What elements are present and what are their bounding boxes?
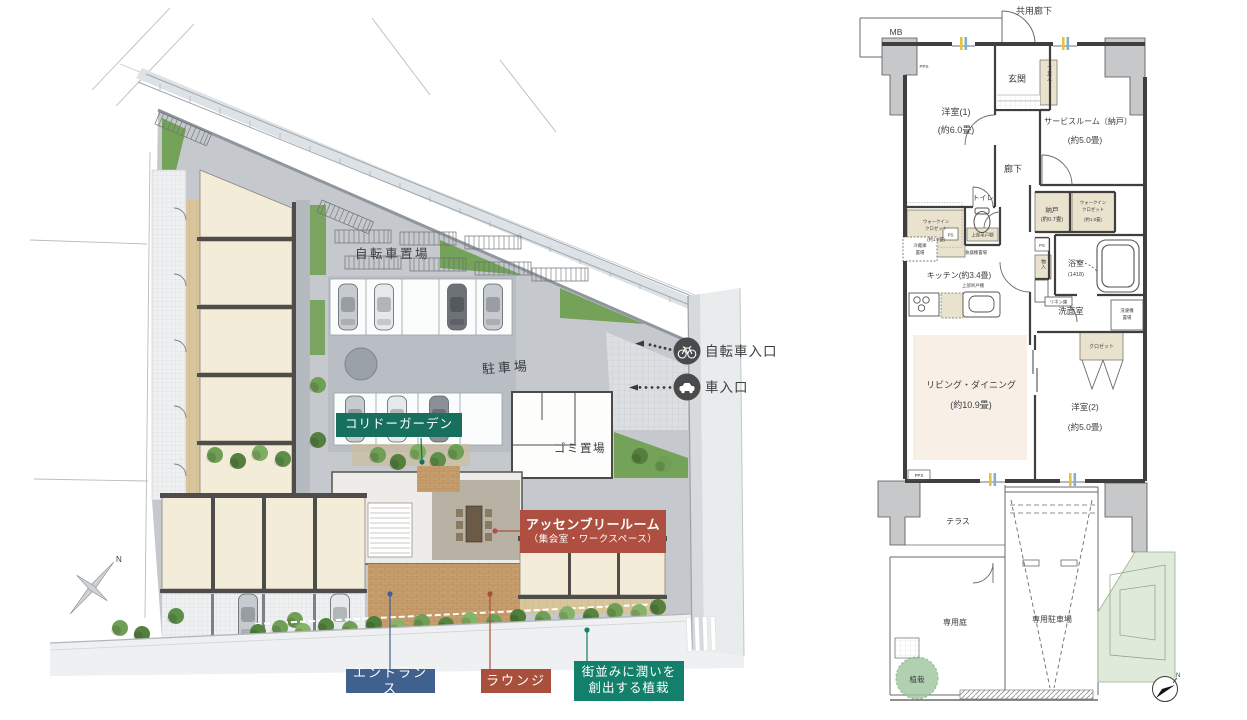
garage-gate <box>960 690 1093 699</box>
entrance-label: エントランス <box>346 665 435 698</box>
car-entry-label: 車入口 <box>705 380 749 395</box>
washer-l1: 洗濯機 <box>1120 307 1134 314</box>
street-planting-label-line1: 街並みに潤いを <box>582 665 677 681</box>
bathtub <box>1097 240 1139 292</box>
hallway-label: 廊下 <box>1004 163 1022 174</box>
living-floor <box>913 335 1027 460</box>
wic12-size: (約1.2畳) <box>927 236 945 243</box>
hang-kitchen-label: 上部吊戸棚 <box>962 282 985 289</box>
left-residence-block <box>152 170 326 500</box>
assembly-room-label-line1: アッセンブリールーム <box>526 517 660 533</box>
wic10-size: (約1.0畳) <box>1084 216 1102 223</box>
entry-area <box>997 95 1040 109</box>
planting-label: 植栽 <box>910 674 925 684</box>
fridge-l2: 置場 <box>916 249 925 256</box>
wic12-l1: ウォークイン <box>923 218 950 225</box>
street-planting-label-line2: 創出する植栽 <box>588 681 669 697</box>
service-name: サービスルーム〔納戸〕 <box>1044 116 1132 126</box>
right-planting-bed <box>1098 552 1175 682</box>
wic12-l2: クロゼット <box>925 225 947 232</box>
room1-name: 洋室(1) <box>942 106 971 117</box>
common-corridor-label: 共用廊下 <box>1016 5 1052 16</box>
room2-size: (約5.0畳) <box>1068 422 1103 432</box>
site-north-compass-icon: N <box>55 549 129 627</box>
wic10-l1: ウォークイン <box>1080 199 1107 206</box>
mb-label: MB <box>890 27 903 37</box>
wic10-l2: クロゼット <box>1082 206 1104 213</box>
pps-top-label: PPS <box>919 64 928 69</box>
bottom-left-residence-block <box>160 493 367 640</box>
entrance-badge: エントランス <box>346 669 435 693</box>
bicycle-entry-label: 自転車入口 <box>705 344 778 359</box>
pps-bottom-label: PPS <box>915 473 924 478</box>
washroom-label: 洗面室 <box>1058 306 1084 316</box>
bath-name: 浴室 <box>1068 258 1084 268</box>
street-planting-badge: 街並みに潤いを 創出する植栽 <box>574 661 684 701</box>
site-plan-svg: 自転車置場 駐車場 ゴミ置場 <box>0 0 800 720</box>
lounge-badge: ラウンジ <box>481 669 551 693</box>
garbage-label: ゴミ置場 <box>554 441 606 455</box>
assembly-room-label-line2: （集会室・ワークスペース） <box>529 534 658 546</box>
lounge-label: ラウンジ <box>486 673 546 689</box>
room2-name: 洋室(2) <box>1071 402 1099 412</box>
bath-size: (1418) <box>1068 272 1084 278</box>
ps1-label: PS <box>948 233 954 238</box>
living-size: (約10.9畳) <box>950 399 992 410</box>
washer-l2: 置場 <box>1123 314 1132 321</box>
hang-toilet-label: 上部吊戸棚 <box>972 232 995 239</box>
entry-label: 玄関 <box>1008 73 1026 84</box>
floorplan-north-label: N <box>1176 673 1180 679</box>
floor-plan-svg: 共用廊下 MB PPS <box>845 0 1185 715</box>
corridor-garden-label: コリドーガーデン <box>345 417 453 433</box>
living-name: リビング・ダイニング <box>926 379 1016 390</box>
page: 自転車置場 駐車場 ゴミ置場 <box>0 0 1247 720</box>
closet-label: クロゼット <box>1089 343 1114 350</box>
linen-label: リネン庫 <box>1050 299 1068 306</box>
nando-name: 納戸 <box>1046 205 1060 214</box>
nando-size: (約0.7畳) <box>1041 215 1063 223</box>
private-parking-label: 専用駐車場 <box>1032 614 1072 624</box>
terrace-label: テラス <box>946 517 970 526</box>
monoire-label: 物入 <box>1040 258 1046 269</box>
site-north-label: N <box>116 555 122 564</box>
room1-size: (約6.0畳) <box>938 124 975 135</box>
bicycle-parking-label: 自転車置場 <box>355 247 430 261</box>
ps2-label: PS <box>1039 243 1045 248</box>
shoe-box-label: 下足入 <box>1046 66 1052 81</box>
fridge-l1: 冷蔵庫 <box>913 242 927 249</box>
assembly-room-badge: アッセンブリールーム （集会室・ワークスペース） <box>520 510 666 553</box>
cupboard-label: 食器棚置場 <box>965 249 988 256</box>
kitchen-label: キッチン(約3.4畳) <box>927 270 992 280</box>
assembly-table <box>466 506 482 542</box>
service-size: (約5.0畳) <box>1068 135 1103 145</box>
corridor-garden-badge: コリドーガーデン <box>336 413 462 437</box>
toilet-label: トイレ <box>973 195 994 202</box>
garden-label: 専用庭 <box>943 617 967 627</box>
